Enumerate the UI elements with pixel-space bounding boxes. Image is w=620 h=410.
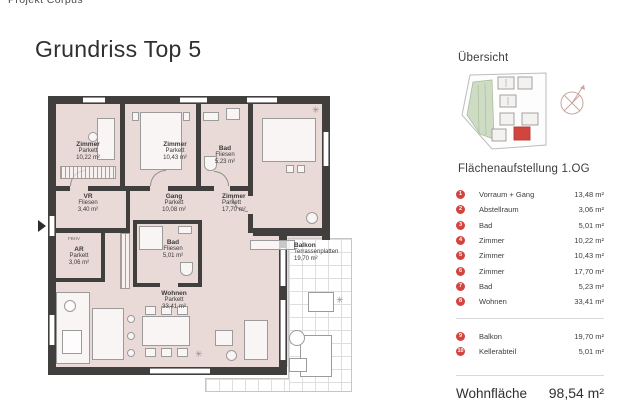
row-number-badge: 6	[456, 267, 465, 276]
door-opening	[160, 283, 178, 287]
wardrobe-hatch	[60, 166, 116, 179]
row-number-badge: 3	[456, 221, 465, 230]
area-row: 9 Balkon 19,70 m²	[456, 328, 604, 343]
furniture-nightstand	[183, 112, 190, 121]
row-number-badge: 1	[456, 190, 465, 199]
door-opening	[214, 186, 230, 191]
row-number-badge: 5	[456, 251, 465, 260]
extra-area-table: 9 Balkon 19,70 m² 10 Kellerabteil 5,01 m…	[456, 328, 604, 359]
bath-sink	[203, 112, 219, 121]
sideboard	[250, 240, 295, 250]
row-value: 10,22 m²	[574, 236, 604, 245]
bar-stool	[127, 349, 135, 357]
wall-segment	[126, 191, 130, 232]
wall-segment	[56, 278, 105, 282]
window	[180, 97, 207, 103]
row-value: 13,48 m²	[574, 190, 604, 199]
entrance-door	[49, 216, 55, 236]
row-label: Bad	[479, 221, 492, 230]
entrance-marker	[38, 220, 46, 232]
wall-segment	[133, 220, 137, 287]
window	[83, 97, 105, 103]
divider	[456, 318, 604, 319]
row-label: Balkon	[479, 332, 502, 341]
area-row: 8 Wohnen 33,41 m²	[456, 294, 604, 309]
row-label: Vorraum + Gang	[479, 190, 534, 199]
row-value: 17,70 m²	[574, 267, 604, 276]
door-opening	[70, 186, 88, 191]
room-label-zimmer2: Zimmer Parkett 10,43 m²	[145, 141, 205, 162]
wall-segment	[322, 96, 330, 240]
balcony-door-glass	[280, 248, 286, 286]
total-row: Wohnfläche 98,54 m²	[456, 385, 604, 401]
overview-title: Übersicht	[458, 52, 604, 64]
window	[323, 132, 329, 166]
room-label-ar: AR Parkett 3,06 m²	[58, 246, 100, 267]
room-label-bad2: Bad Fliesen 5,01 m²	[148, 239, 198, 260]
wall-segment	[56, 228, 130, 233]
bar-stool	[127, 315, 135, 323]
compass-icon	[554, 77, 594, 121]
row-value: 5,23 m²	[579, 282, 604, 291]
row-value: 33,41 m²	[574, 297, 604, 306]
area-row: 3 Bad 5,01 m²	[456, 218, 604, 233]
area-row: 4 Zimmer 10,22 m²	[456, 233, 604, 248]
balcony-table	[308, 292, 334, 312]
site-plan-map	[458, 71, 552, 153]
row-number-badge: 4	[456, 236, 465, 245]
room-label-wohnen: Wohnen Parkett 33,41 m²	[145, 290, 203, 311]
total-value: 98,54 m²	[549, 385, 604, 401]
wall-segment	[253, 228, 330, 236]
furniture-bench	[286, 165, 294, 173]
wall-segment	[101, 233, 105, 282]
kitchen-stove	[62, 330, 82, 354]
row-label: Zimmer	[479, 267, 504, 276]
furniture-nightstand	[132, 112, 139, 121]
window	[49, 315, 55, 345]
dining-chair	[161, 348, 172, 357]
row-number-badge: 9	[456, 332, 465, 341]
sofa	[244, 320, 268, 360]
furniture-bed	[262, 118, 316, 162]
divider	[456, 375, 604, 376]
bath-wc	[180, 262, 193, 276]
site-overview	[456, 71, 604, 155]
balcony-window-glass	[280, 300, 286, 360]
row-value: 5,01 m²	[579, 221, 604, 230]
page-title: Grundriss Top 5	[35, 36, 201, 63]
wardrobe-hatch	[120, 233, 130, 289]
furniture-chair	[306, 212, 318, 224]
row-label: Zimmer	[479, 251, 504, 260]
row-number-badge: 2	[456, 205, 465, 214]
area-row: 5 Zimmer 10,43 m²	[456, 248, 604, 263]
row-number-badge: 7	[456, 282, 465, 291]
row-number-badge: 10	[456, 347, 465, 356]
area-row: 1 Vorraum + Gang 13,48 m²	[456, 187, 604, 202]
sidebar: Übersicht Flächena	[456, 52, 604, 401]
row-label: Zimmer	[479, 236, 504, 245]
furniture-bench	[297, 165, 305, 173]
bath-sink	[178, 226, 192, 234]
area-row: 10 Kellerabteil 5,01 m²	[456, 344, 604, 359]
bath-washer	[226, 108, 240, 120]
room-label-vr: VR Fliesen 3,40 m²	[60, 193, 116, 214]
row-value: 5,01 m²	[579, 347, 604, 356]
row-label: Bad	[479, 282, 492, 291]
area-row: 6 Zimmer 17,70 m²	[456, 263, 604, 278]
dining-chair	[177, 348, 188, 357]
window	[247, 97, 277, 103]
row-value: 19,70 m²	[574, 332, 604, 341]
row-label: Abstellraum	[479, 205, 519, 214]
door-opening	[150, 186, 168, 191]
bar-stool	[127, 332, 135, 340]
coffee-table	[226, 350, 237, 361]
wall-segment	[133, 220, 202, 224]
highlighted-building	[514, 127, 530, 140]
note-fbhv: FBHV	[68, 236, 80, 241]
area-row: 7 Bad 5,23 m²	[456, 279, 604, 294]
plant-icon: ✳	[312, 106, 320, 115]
row-label: Wohnen	[479, 297, 507, 306]
plant-icon: ✳	[336, 296, 344, 305]
row-value: 3,06 m²	[579, 205, 604, 214]
row-label: Kellerabteil	[479, 347, 516, 356]
kitchen-sink	[64, 300, 76, 312]
room-label-zimmer1: Zimmer Parkett 10,22 m²	[58, 141, 118, 162]
armchair	[215, 330, 233, 346]
balcony-bistro	[289, 330, 305, 346]
balcony-stool	[289, 358, 307, 372]
plant-icon: ✳	[195, 350, 203, 359]
room-label-balkon: Balkon Terrassenplatten 19,70 m²	[294, 242, 350, 263]
area-row: 2 Abstellraum 3,06 m²	[456, 202, 604, 217]
window	[150, 368, 210, 374]
total-label: Wohnfläche	[456, 386, 527, 401]
dining-table	[142, 316, 190, 346]
row-number-badge: 8	[456, 297, 465, 306]
area-table: 1 Vorraum + Gang 13,48 m² 2 Abstellraum …	[456, 187, 604, 309]
room-label-bad1: Bad Fliesen 5,23 m²	[202, 145, 248, 166]
row-value: 10,43 m²	[574, 251, 604, 260]
balcony-strip	[205, 378, 289, 392]
kitchen-island	[92, 308, 124, 360]
room-label-zimmer3: Zimmer Parkett 17,70 m²	[222, 193, 272, 214]
wall-segment	[198, 220, 202, 287]
dining-chair	[145, 348, 156, 357]
project-name: Projekt Corpus	[8, 0, 83, 6]
wall-segment	[120, 104, 125, 186]
room-label-gang: Gang Parkett 10,08 m²	[145, 193, 203, 214]
area-table-title: Flächenaufstellung 1.OG	[458, 163, 604, 175]
